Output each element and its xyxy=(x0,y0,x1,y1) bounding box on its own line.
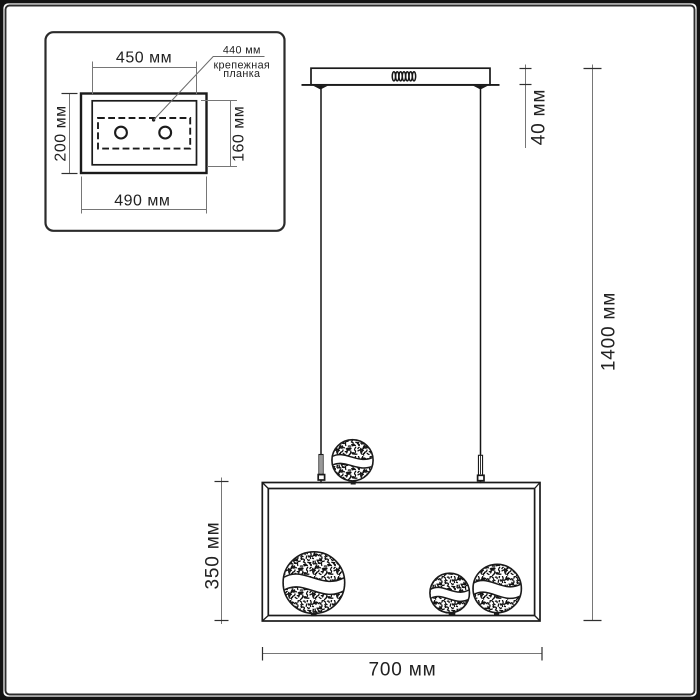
svg-text:700 мм: 700 мм xyxy=(369,660,437,681)
svg-text:200 мм: 200 мм xyxy=(53,105,70,161)
svg-text:440 мм: 440 мм xyxy=(223,45,261,57)
svg-text:450 мм: 450 мм xyxy=(116,49,172,66)
svg-text:1400 мм: 1400 мм xyxy=(599,292,620,371)
svg-text:160 мм: 160 мм xyxy=(231,106,248,162)
svg-text:490 мм: 490 мм xyxy=(114,192,170,209)
svg-text:350 мм: 350 мм xyxy=(203,522,224,590)
svg-text:планка: планка xyxy=(223,68,260,80)
svg-text:40 мм: 40 мм xyxy=(529,89,550,146)
